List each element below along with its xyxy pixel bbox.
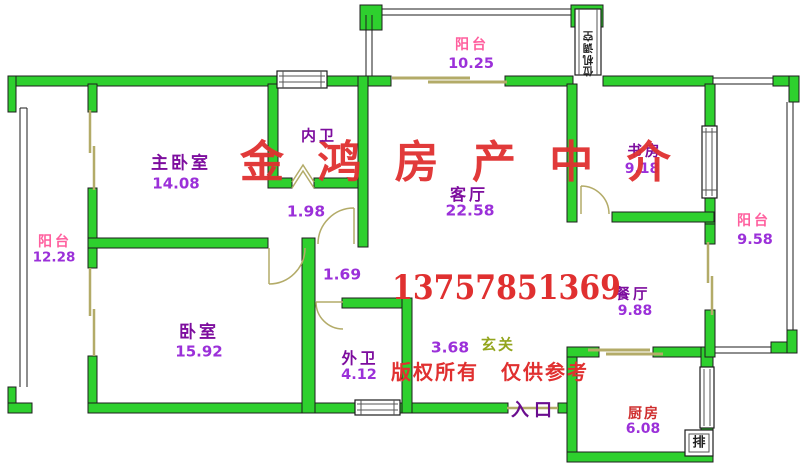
floorplan-canvas: 主卧室 14.08 阳台 12.28 卧室 15.92 内卫 1.98 客厅 2… bbox=[0, 0, 800, 470]
entrance-label: 入口 bbox=[511, 402, 557, 420]
room-area-bedroom: 15.92 bbox=[175, 345, 222, 360]
room-label-inner-bathroom: 内卫 bbox=[301, 129, 337, 144]
hallway-width: 1.69 bbox=[323, 267, 361, 283]
room-area-balcony-right: 9.58 bbox=[737, 233, 773, 248]
phone-watermark: 13757851369 bbox=[392, 268, 621, 308]
room-label-balcony-top: 阳台 bbox=[455, 38, 489, 52]
ac-shaft-char: 位 bbox=[583, 64, 594, 79]
room-label-balcony-right: 阳台 bbox=[737, 214, 771, 228]
room-area-inner-bathroom: 1.98 bbox=[287, 204, 325, 220]
room-area-balcony-left: 12.28 bbox=[33, 251, 76, 265]
exhaust-label: 排 bbox=[692, 437, 705, 450]
room-label-bedroom: 卧室 bbox=[179, 325, 219, 342]
floor-plan-svg bbox=[0, 0, 800, 470]
room-area-foyer: 3.68 bbox=[431, 340, 469, 356]
room-label-kitchen: 厨房 bbox=[628, 407, 660, 421]
copyright-watermark: 版权所有 仅供参考 bbox=[391, 356, 589, 385]
room-label-foyer: 玄关 bbox=[481, 338, 515, 353]
room-area-living-room: 22.58 bbox=[445, 203, 494, 219]
room-area-dining-room: 9.88 bbox=[618, 304, 653, 318]
walls-layer bbox=[8, 5, 799, 462]
room-label-outer-bathroom: 外卫 bbox=[341, 351, 378, 367]
room-label-master-bedroom: 主卧室 bbox=[151, 156, 211, 173]
room-area-outer-bathroom: 4.12 bbox=[341, 368, 377, 383]
room-area-kitchen: 6.08 bbox=[626, 422, 661, 436]
room-area-master-bedroom: 14.08 bbox=[152, 177, 199, 192]
room-label-balcony-left: 阳台 bbox=[38, 235, 72, 249]
room-area-balcony-top: 10.25 bbox=[448, 57, 494, 72]
